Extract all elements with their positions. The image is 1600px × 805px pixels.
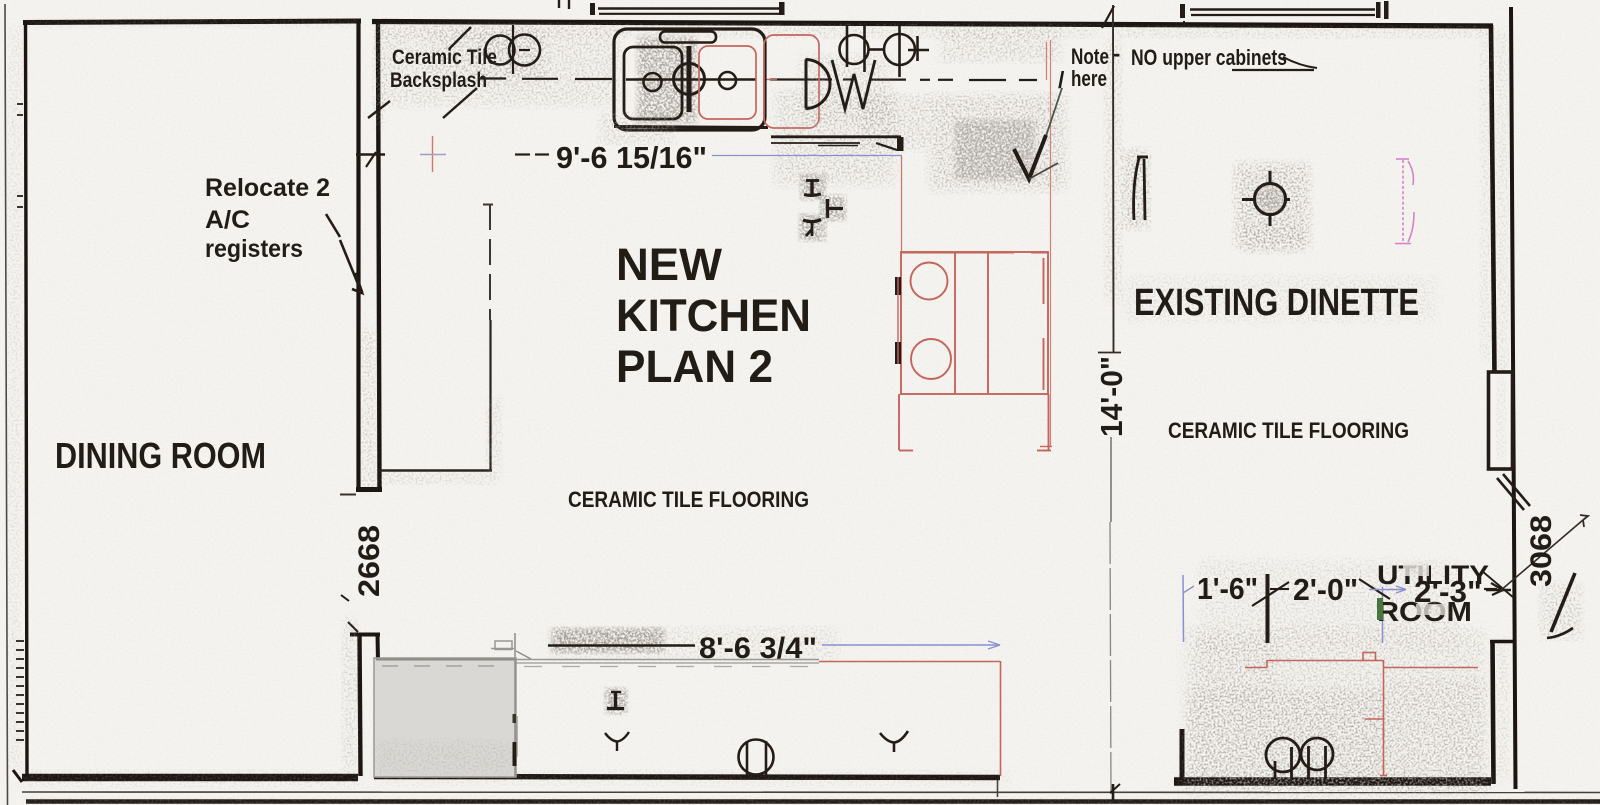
svg-text:EXISTING DINETTE: EXISTING DINETTE <box>1134 282 1419 324</box>
svg-text:here: here <box>1071 66 1107 91</box>
svg-text:Backsplash: Backsplash <box>390 69 487 92</box>
svg-text:-: - <box>1113 41 1120 66</box>
svg-text:14'-0": 14'-0" <box>1094 356 1129 437</box>
svg-text:1'-6": 1'-6" <box>1197 571 1258 606</box>
svg-text:registers: registers <box>205 235 303 263</box>
svg-text:Ceramic Tile: Ceramic Tile <box>392 46 497 69</box>
svg-text:3068: 3068 <box>1525 515 1558 587</box>
svg-text:NEW: NEW <box>616 239 723 290</box>
svg-text:2668: 2668 <box>353 525 386 597</box>
svg-text:PLAN 2: PLAN 2 <box>616 341 773 392</box>
svg-text:8'-6 3/4": 8'-6 3/4" <box>699 632 817 665</box>
svg-text:CERAMIC TILE FLOORING: CERAMIC TILE FLOORING <box>568 487 809 512</box>
svg-text:Relocate 2: Relocate 2 <box>205 174 330 202</box>
svg-text:A/C: A/C <box>205 206 250 234</box>
svg-text:CERAMIC TILE FLOORING: CERAMIC TILE FLOORING <box>1168 418 1409 443</box>
svg-text:DINING ROOM: DINING ROOM <box>55 435 266 476</box>
svg-text:NO upper cabinets: NO upper cabinets <box>1131 45 1287 70</box>
svg-text:2'-0": 2'-0" <box>1293 572 1358 607</box>
svg-text:KITCHEN: KITCHEN <box>616 290 811 341</box>
svg-text:UTILITY: UTILITY <box>1377 560 1489 590</box>
svg-text:/: / <box>1058 67 1065 93</box>
svg-text:9'-6 15/16": 9'-6 15/16" <box>556 140 707 175</box>
